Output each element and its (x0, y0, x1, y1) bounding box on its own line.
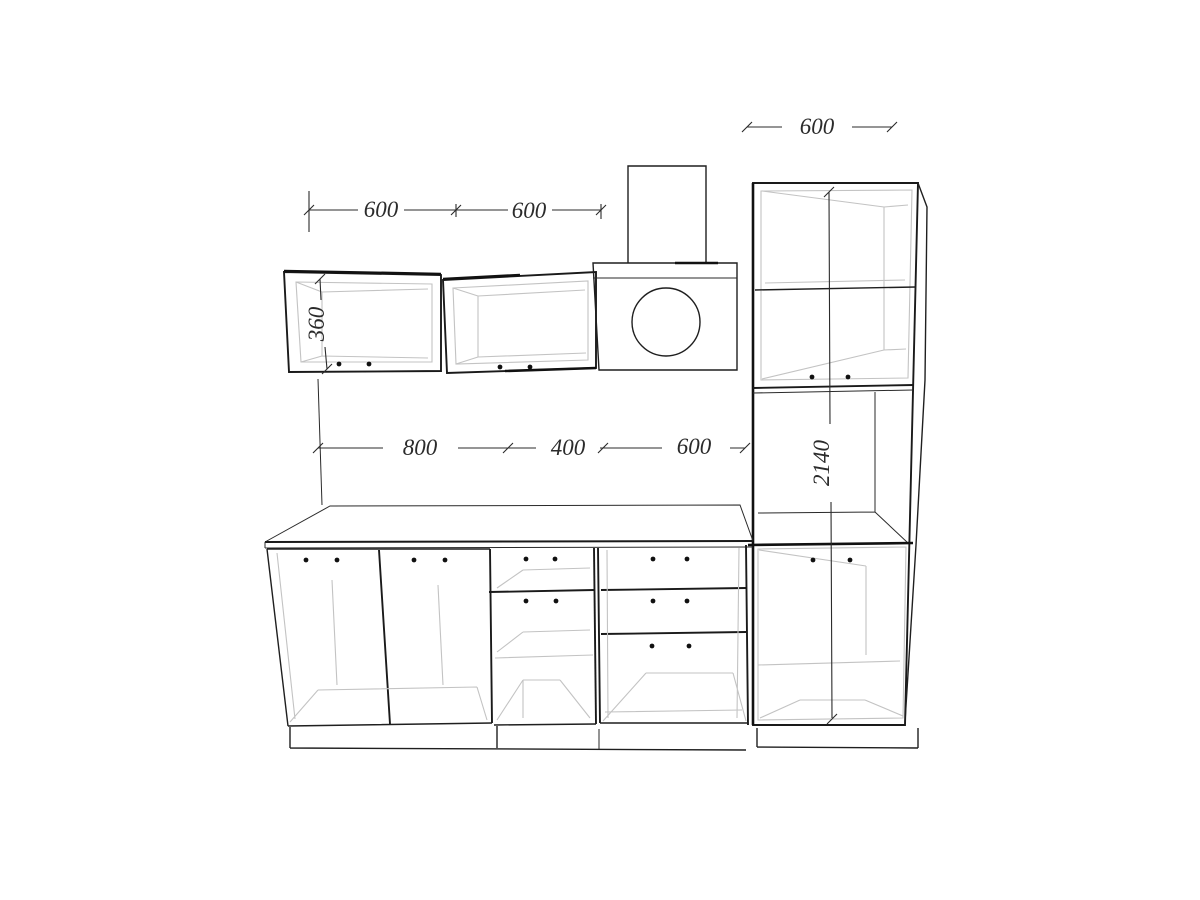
base-drawer-unit (598, 545, 748, 725)
dim-wall-cabinets: 600 600 (304, 191, 606, 232)
cooker-hood (593, 166, 737, 370)
countertop (265, 505, 753, 548)
dim-label-wall-left: 600 (364, 197, 399, 222)
tall-cabinet (748, 183, 927, 748)
wall-cabinet-right (443, 272, 596, 373)
dim-label-base-doors: 800 (403, 435, 438, 460)
kitchen-elevation-drawing: 600 600 600 360 (0, 0, 1200, 900)
hood-chimney (628, 166, 706, 263)
tall-cabinet-plinth (757, 728, 918, 748)
dim-base-run: 800 400 600 (313, 434, 750, 460)
dim-label-tall-height: 2140 (809, 440, 834, 487)
hood-fan-circle (632, 288, 700, 356)
dim-label-tall-width: 600 (800, 114, 835, 139)
dim-tall-cabinet-height: 2140 (809, 187, 837, 724)
base-cabinet-doors (267, 549, 492, 726)
extension-line-left (318, 379, 322, 505)
dim-label-wall-height: 360 (304, 306, 329, 342)
dim-label-base-drawers: 600 (677, 434, 712, 459)
dim-tall-cabinet-width: 600 (742, 114, 897, 139)
base-plinth (290, 726, 746, 750)
tall-upper-shelves (755, 190, 916, 380)
dim-label-base-open: 400 (551, 435, 586, 460)
drawing-canvas: 600 600 600 360 (0, 0, 1200, 900)
dim-label-wall-right: 600 (512, 198, 547, 223)
base-open-unit (489, 548, 596, 725)
dim-wall-cabinet-height: 360 (304, 274, 332, 374)
